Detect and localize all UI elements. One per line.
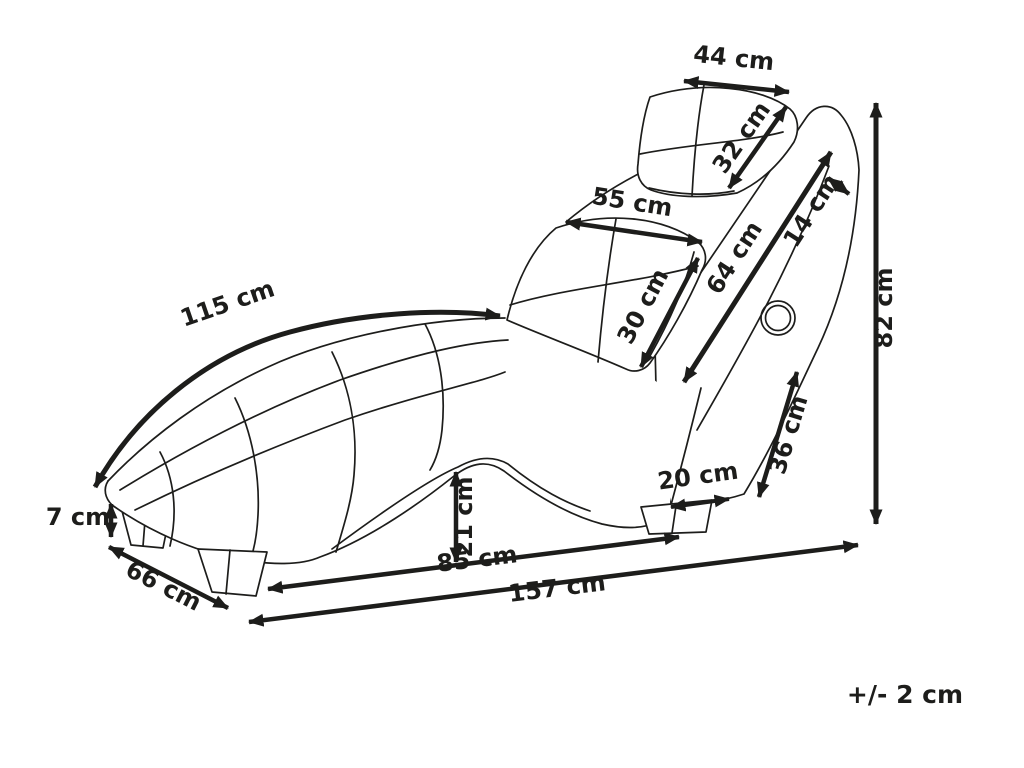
dimension-label-seat-curve-length: 115 cm: [177, 274, 278, 332]
dimension-label-plinth-height: 7 cm: [46, 503, 110, 531]
dimension-label-headrest-width: 44 cm: [692, 40, 775, 76]
dimension-diagram-page: 44 cm 32 cm 55 cm 30 cm 64 cm 14 cm 82 c…: [0, 0, 1024, 768]
tolerance-note: +/- 2 cm: [847, 680, 963, 709]
dimension-total-height: 82 cm: [870, 103, 898, 524]
dimension-label-total-height: 82 cm: [870, 268, 898, 349]
dimension-label-base-span: 85 cm: [435, 540, 519, 578]
dimension-headrest-width: 44 cm: [684, 40, 789, 92]
front-left-leg: [198, 549, 267, 596]
chaise-longue-dimension-diagram: 44 cm 32 cm 55 cm 30 cm 64 cm 14 cm 82 c…: [0, 0, 1024, 768]
dimension-label-total-length: 157 cm: [507, 568, 607, 608]
dimension-plinth-height: 7 cm: [46, 503, 111, 537]
deck-fill: [105, 318, 672, 564]
dimension-label-base-depth: 66 cm: [121, 555, 206, 617]
dimension-total-length: 157 cm: [249, 545, 858, 622]
